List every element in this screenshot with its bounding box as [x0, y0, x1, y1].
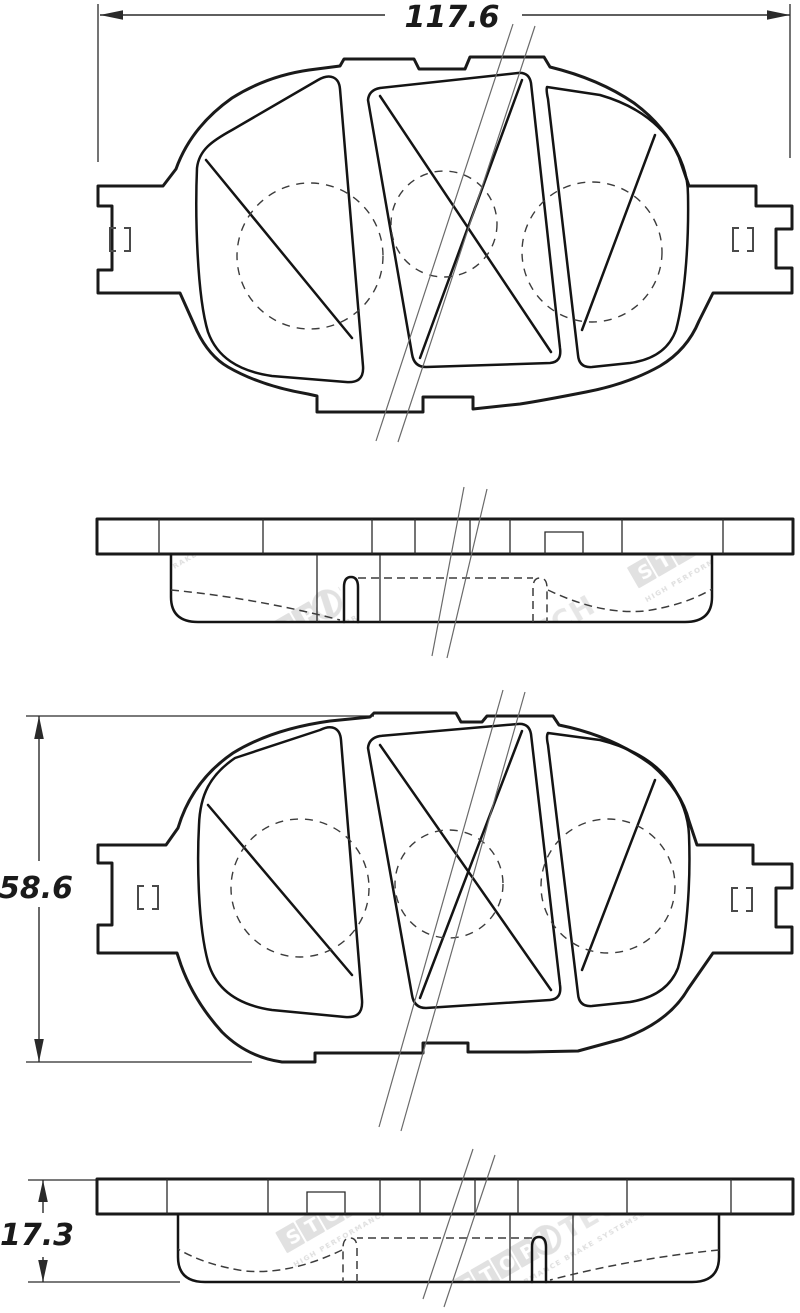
side-b-watermark-area [178, 1215, 719, 1282]
arrow-left-icon [100, 10, 123, 20]
brake-pad-technical-drawing: STOP TECH HIGH PERFORMANCE BRAKE SYSTEMS… [0, 0, 800, 1313]
side-view-pad-b: 17.3 [0, 1149, 793, 1307]
abutment-mark-right [733, 228, 753, 251]
side-a-watermark-area [171, 555, 712, 622]
arrow-up-icon [34, 716, 44, 739]
width-dimension-label: 117.6 [405, 0, 500, 35]
drawing-svg: STOP TECH HIGH PERFORMANCE BRAKE SYSTEMS… [0, 0, 800, 1313]
abutment-mark-left [138, 886, 158, 909]
abutment-mark-right [732, 888, 752, 911]
front-view-pad-a: 117.6 [98, 0, 792, 442]
piston-contact-circle [541, 819, 675, 953]
piston-contact-circle [391, 171, 497, 277]
front-view-pad-b: 58.6 [0, 690, 792, 1131]
piston-contact-circle [237, 183, 383, 329]
height-dimension-label: 58.6 [0, 871, 73, 906]
thickness-dimension: 17.3 [0, 1180, 180, 1282]
break-lines [379, 690, 525, 1131]
arrow-up-icon [38, 1180, 48, 1202]
pad-a-friction-material [196, 73, 688, 382]
arrow-right-icon [767, 10, 790, 20]
side-view-pad-a [97, 487, 793, 658]
thickness-dimension-label: 17.3 [0, 1218, 74, 1253]
piston-contact-circle [231, 819, 369, 957]
arrow-down-icon [38, 1260, 48, 1282]
pad-b-friction-material [198, 724, 689, 1017]
arrow-down-icon [34, 1039, 44, 1062]
height-dimension: 58.6 [0, 716, 374, 1062]
